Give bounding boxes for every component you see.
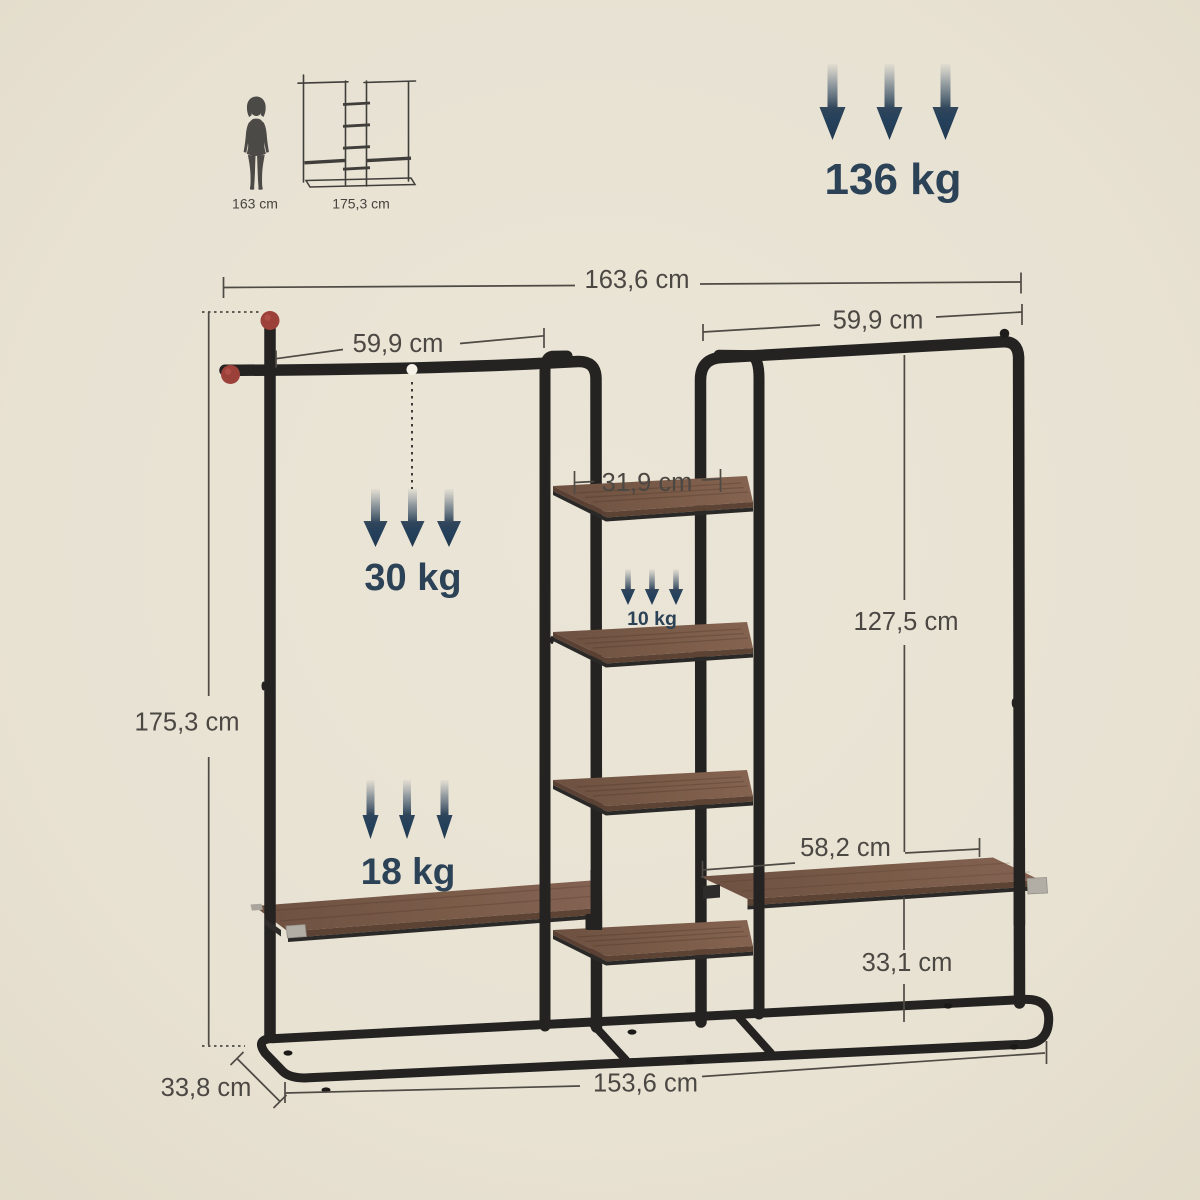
svg-text:175,3 cm: 175,3 cm: [135, 709, 240, 737]
svg-text:33,1 cm: 33,1 cm: [862, 949, 953, 977]
svg-text:59,9 cm: 59,9 cm: [833, 307, 924, 335]
svg-text:33,8 cm: 33,8 cm: [161, 1074, 252, 1102]
svg-text:30 kg: 30 kg: [364, 557, 461, 599]
svg-text:163,6 cm: 163,6 cm: [585, 266, 690, 294]
svg-text:153,6 cm: 153,6 cm: [593, 1070, 698, 1098]
svg-text:59,9 cm: 59,9 cm: [353, 330, 444, 358]
svg-text:136 kg: 136 kg: [825, 155, 962, 204]
svg-text:163 cm: 163 cm: [232, 196, 278, 212]
svg-text:58,2 cm: 58,2 cm: [800, 834, 891, 862]
svg-text:10 kg: 10 kg: [627, 608, 677, 630]
svg-text:127,5 cm: 127,5 cm: [854, 608, 959, 636]
svg-text:18 kg: 18 kg: [361, 851, 456, 892]
svg-text:31,9 cm: 31,9 cm: [602, 469, 693, 497]
svg-text:175,3 cm: 175,3 cm: [332, 196, 390, 212]
